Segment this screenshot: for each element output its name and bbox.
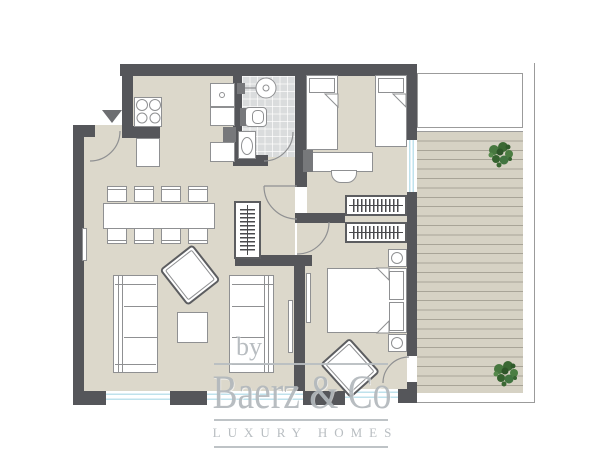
shower-head-center bbox=[263, 85, 269, 91]
bedside-lamp bbox=[392, 253, 403, 264]
bathroom-door-arc bbox=[264, 132, 293, 161]
bedside-lamp bbox=[392, 338, 403, 349]
duvet-fold bbox=[325, 94, 338, 107]
garden-plant bbox=[489, 142, 514, 168]
plan-symbols-overlay bbox=[0, 0, 600, 469]
stove-burner bbox=[150, 113, 160, 123]
master-door-arc bbox=[297, 222, 329, 254]
floor-plan: by Baerz & Co LUXURY HOMES bbox=[0, 0, 600, 469]
duvet-fold bbox=[377, 321, 389, 333]
duvet-fold bbox=[393, 94, 406, 107]
garden-plant bbox=[494, 361, 519, 387]
fridge-knob bbox=[220, 93, 225, 98]
stove-burner bbox=[150, 100, 161, 111]
stove-burner bbox=[137, 113, 147, 123]
duvet-fold bbox=[377, 268, 389, 280]
entrance-door-arc bbox=[90, 131, 120, 161]
stove-burner bbox=[137, 100, 148, 111]
terrace-door-arc bbox=[383, 357, 409, 383]
kids-door-arc bbox=[264, 186, 297, 219]
